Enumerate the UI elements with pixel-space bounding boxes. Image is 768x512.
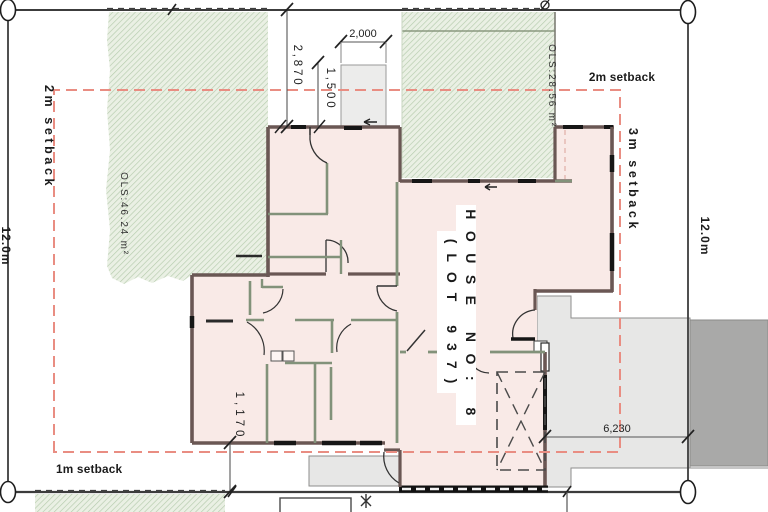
svg-text:OLS:28.56 m²: OLS:28.56 m² xyxy=(546,44,557,128)
svg-text:2m setback: 2m setback xyxy=(42,85,56,189)
svg-text:2m setback: 2m setback xyxy=(589,70,656,84)
svg-text:3m setback: 3m setback xyxy=(626,128,640,232)
svg-text:1,500: 1,500 xyxy=(324,68,336,111)
svg-text:2,870: 2,870 xyxy=(291,45,303,88)
svg-text:12.0m: 12.0m xyxy=(0,226,13,265)
svg-text:1,170: 1,170 xyxy=(233,392,245,441)
svg-text:(LOT 937): (LOT 937) xyxy=(444,239,460,394)
svg-text:HOUSE NO: 8: HOUSE NO: 8 xyxy=(463,209,479,427)
svg-text:OLS:46.24 m²: OLS:46.24 m² xyxy=(118,172,129,256)
svg-text:6,230: 6,230 xyxy=(603,423,631,435)
svg-text:12.0m: 12.0m xyxy=(698,216,712,255)
svg-text:1m setback: 1m setback xyxy=(56,462,123,476)
svg-text:2,000: 2,000 xyxy=(349,28,377,40)
